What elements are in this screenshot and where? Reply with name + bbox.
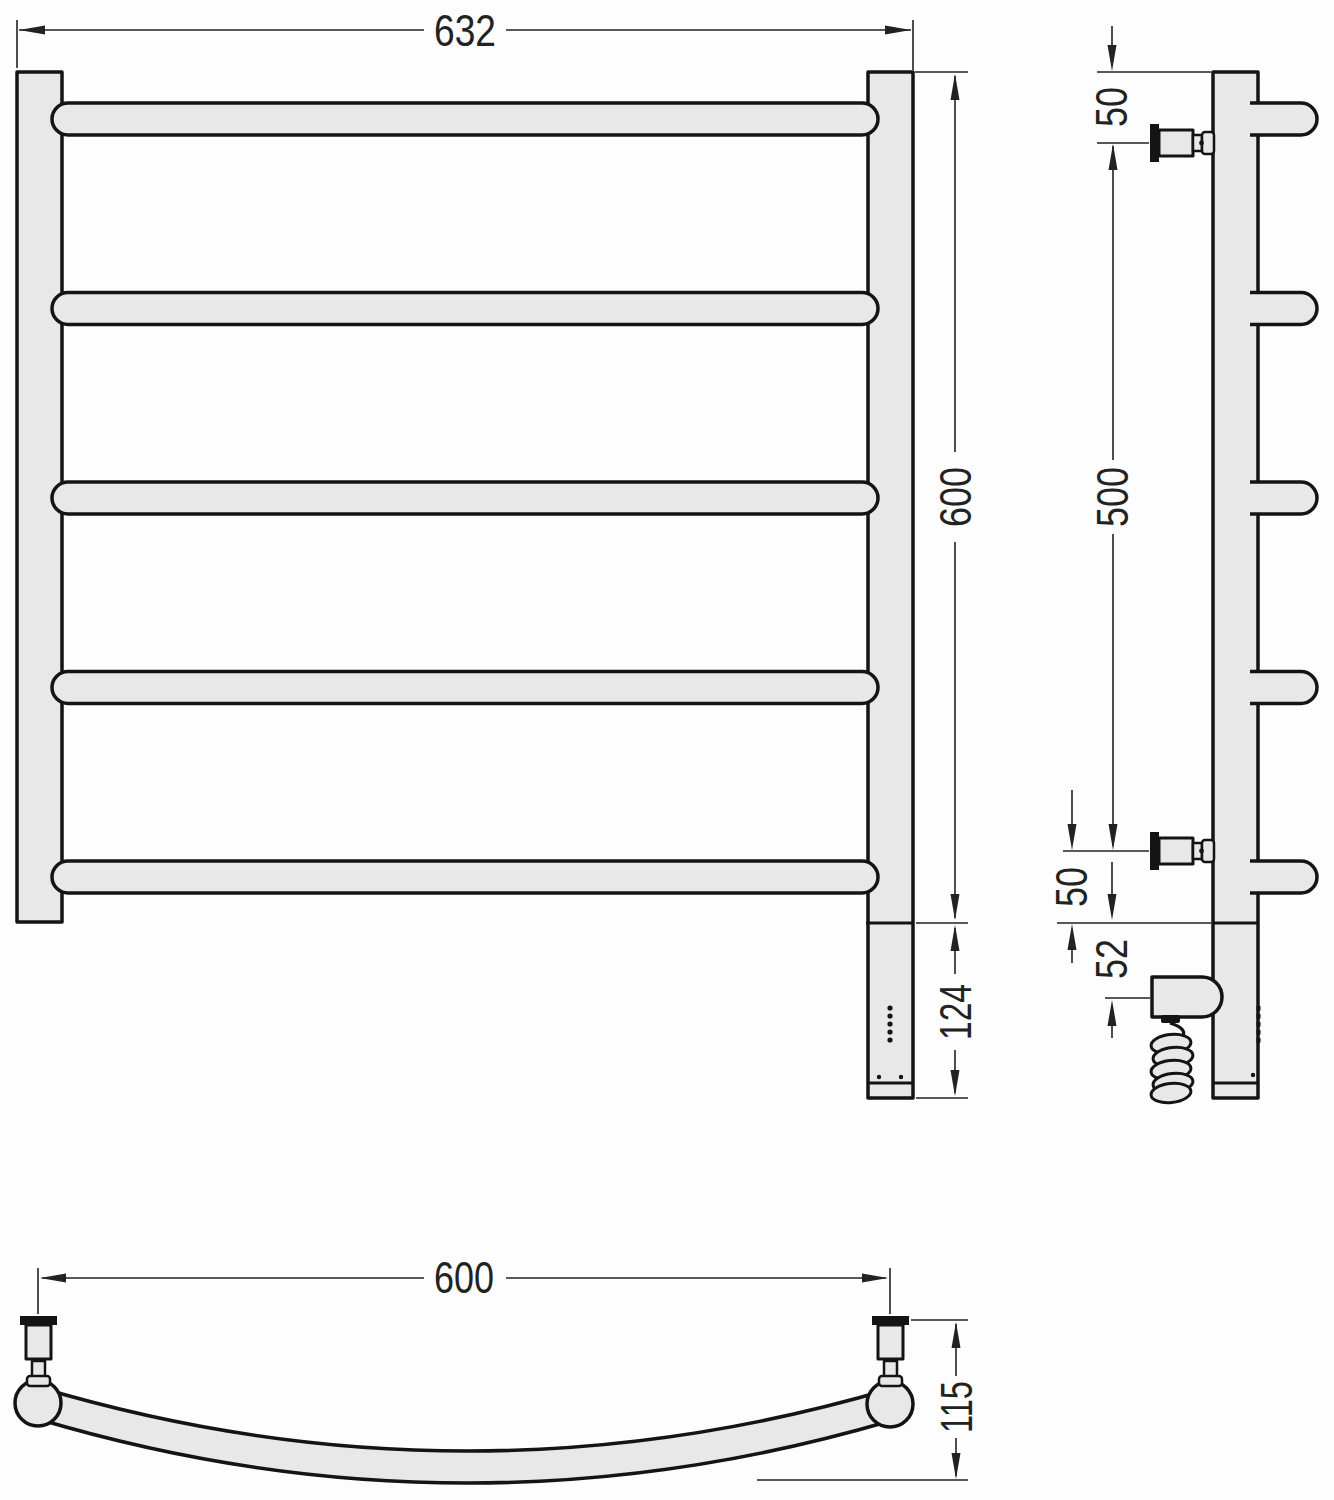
bracket-endcap <box>27 1376 50 1386</box>
front-view <box>17 72 914 1098</box>
dim-side-bracket-span: 500 <box>1063 144 1149 851</box>
bracket-body <box>26 1325 51 1359</box>
bracket-neck <box>32 1361 45 1377</box>
side-bracket-top <box>1150 124 1214 162</box>
dim-top-depth-label: 115 <box>931 1381 982 1433</box>
front-bar-5 <box>52 861 878 893</box>
side-view <box>1150 72 1317 1105</box>
dimensions: 632 600 124 50 <box>17 5 1211 1481</box>
bracket-body <box>1159 838 1193 864</box>
top-view-left-bracket <box>20 1316 57 1386</box>
dim-side-bottom-offset-label: 50 <box>1046 867 1097 907</box>
bracket-endcap <box>879 1376 902 1386</box>
dim-front-height-label: 600 <box>930 467 981 527</box>
dim-side-heater-offset-label: 52 <box>1086 939 1137 979</box>
front-bar-3 <box>52 482 878 514</box>
side-endcap-screw-dot <box>1251 1073 1255 1077</box>
bracket-dot <box>1199 849 1204 854</box>
towel-rail-technical-drawing: 632 600 124 50 <box>0 0 1334 1500</box>
dim-side-bottom-offset: 50 <box>1046 790 1097 963</box>
front-right-post <box>868 72 913 1098</box>
side-bar-stub-1 <box>1250 103 1317 135</box>
top-view-right-post-section <box>867 1381 913 1427</box>
side-heater-cable-coil <box>1150 1023 1194 1105</box>
top-view-crossbar <box>38 1387 890 1483</box>
dim-front-height: 600 <box>915 72 981 920</box>
bracket-body <box>878 1325 903 1359</box>
dim-front-bottom-height: 124 <box>916 923 981 1098</box>
side-bar-stub-2 <box>1250 293 1317 325</box>
side-heater-unit <box>1152 977 1222 1023</box>
side-column <box>1213 72 1258 1098</box>
drawing-canvas: 632 600 124 50 <box>0 0 1334 1500</box>
side-bracket-bottom <box>1150 832 1214 870</box>
top-view-right-bracket <box>872 1316 909 1386</box>
dim-front-width: 632 <box>17 5 913 71</box>
dim-side-bracket-span-label: 500 <box>1087 467 1138 527</box>
dim-front-bottom-height-label: 124 <box>930 984 981 1040</box>
side-bar-stub-4 <box>1250 672 1317 704</box>
top-view <box>15 1316 913 1483</box>
dim-top-width: 600 <box>38 1252 890 1315</box>
side-bar-stub-5 <box>1250 861 1317 893</box>
dim-front-width-label: 632 <box>434 5 496 56</box>
front-bar-4 <box>52 672 878 704</box>
dim-top-width-label: 600 <box>434 1252 494 1303</box>
front-bar-1 <box>52 103 878 135</box>
dim-side-top-offset-label: 50 <box>1086 87 1137 127</box>
front-bar-2 <box>52 293 878 325</box>
side-bar-stub-3 <box>1250 482 1317 514</box>
dim-side-top-offset: 50 <box>1086 26 1212 143</box>
bracket-dot <box>1199 141 1204 146</box>
bracket-neck <box>884 1361 897 1377</box>
bracket-body <box>1159 130 1193 156</box>
